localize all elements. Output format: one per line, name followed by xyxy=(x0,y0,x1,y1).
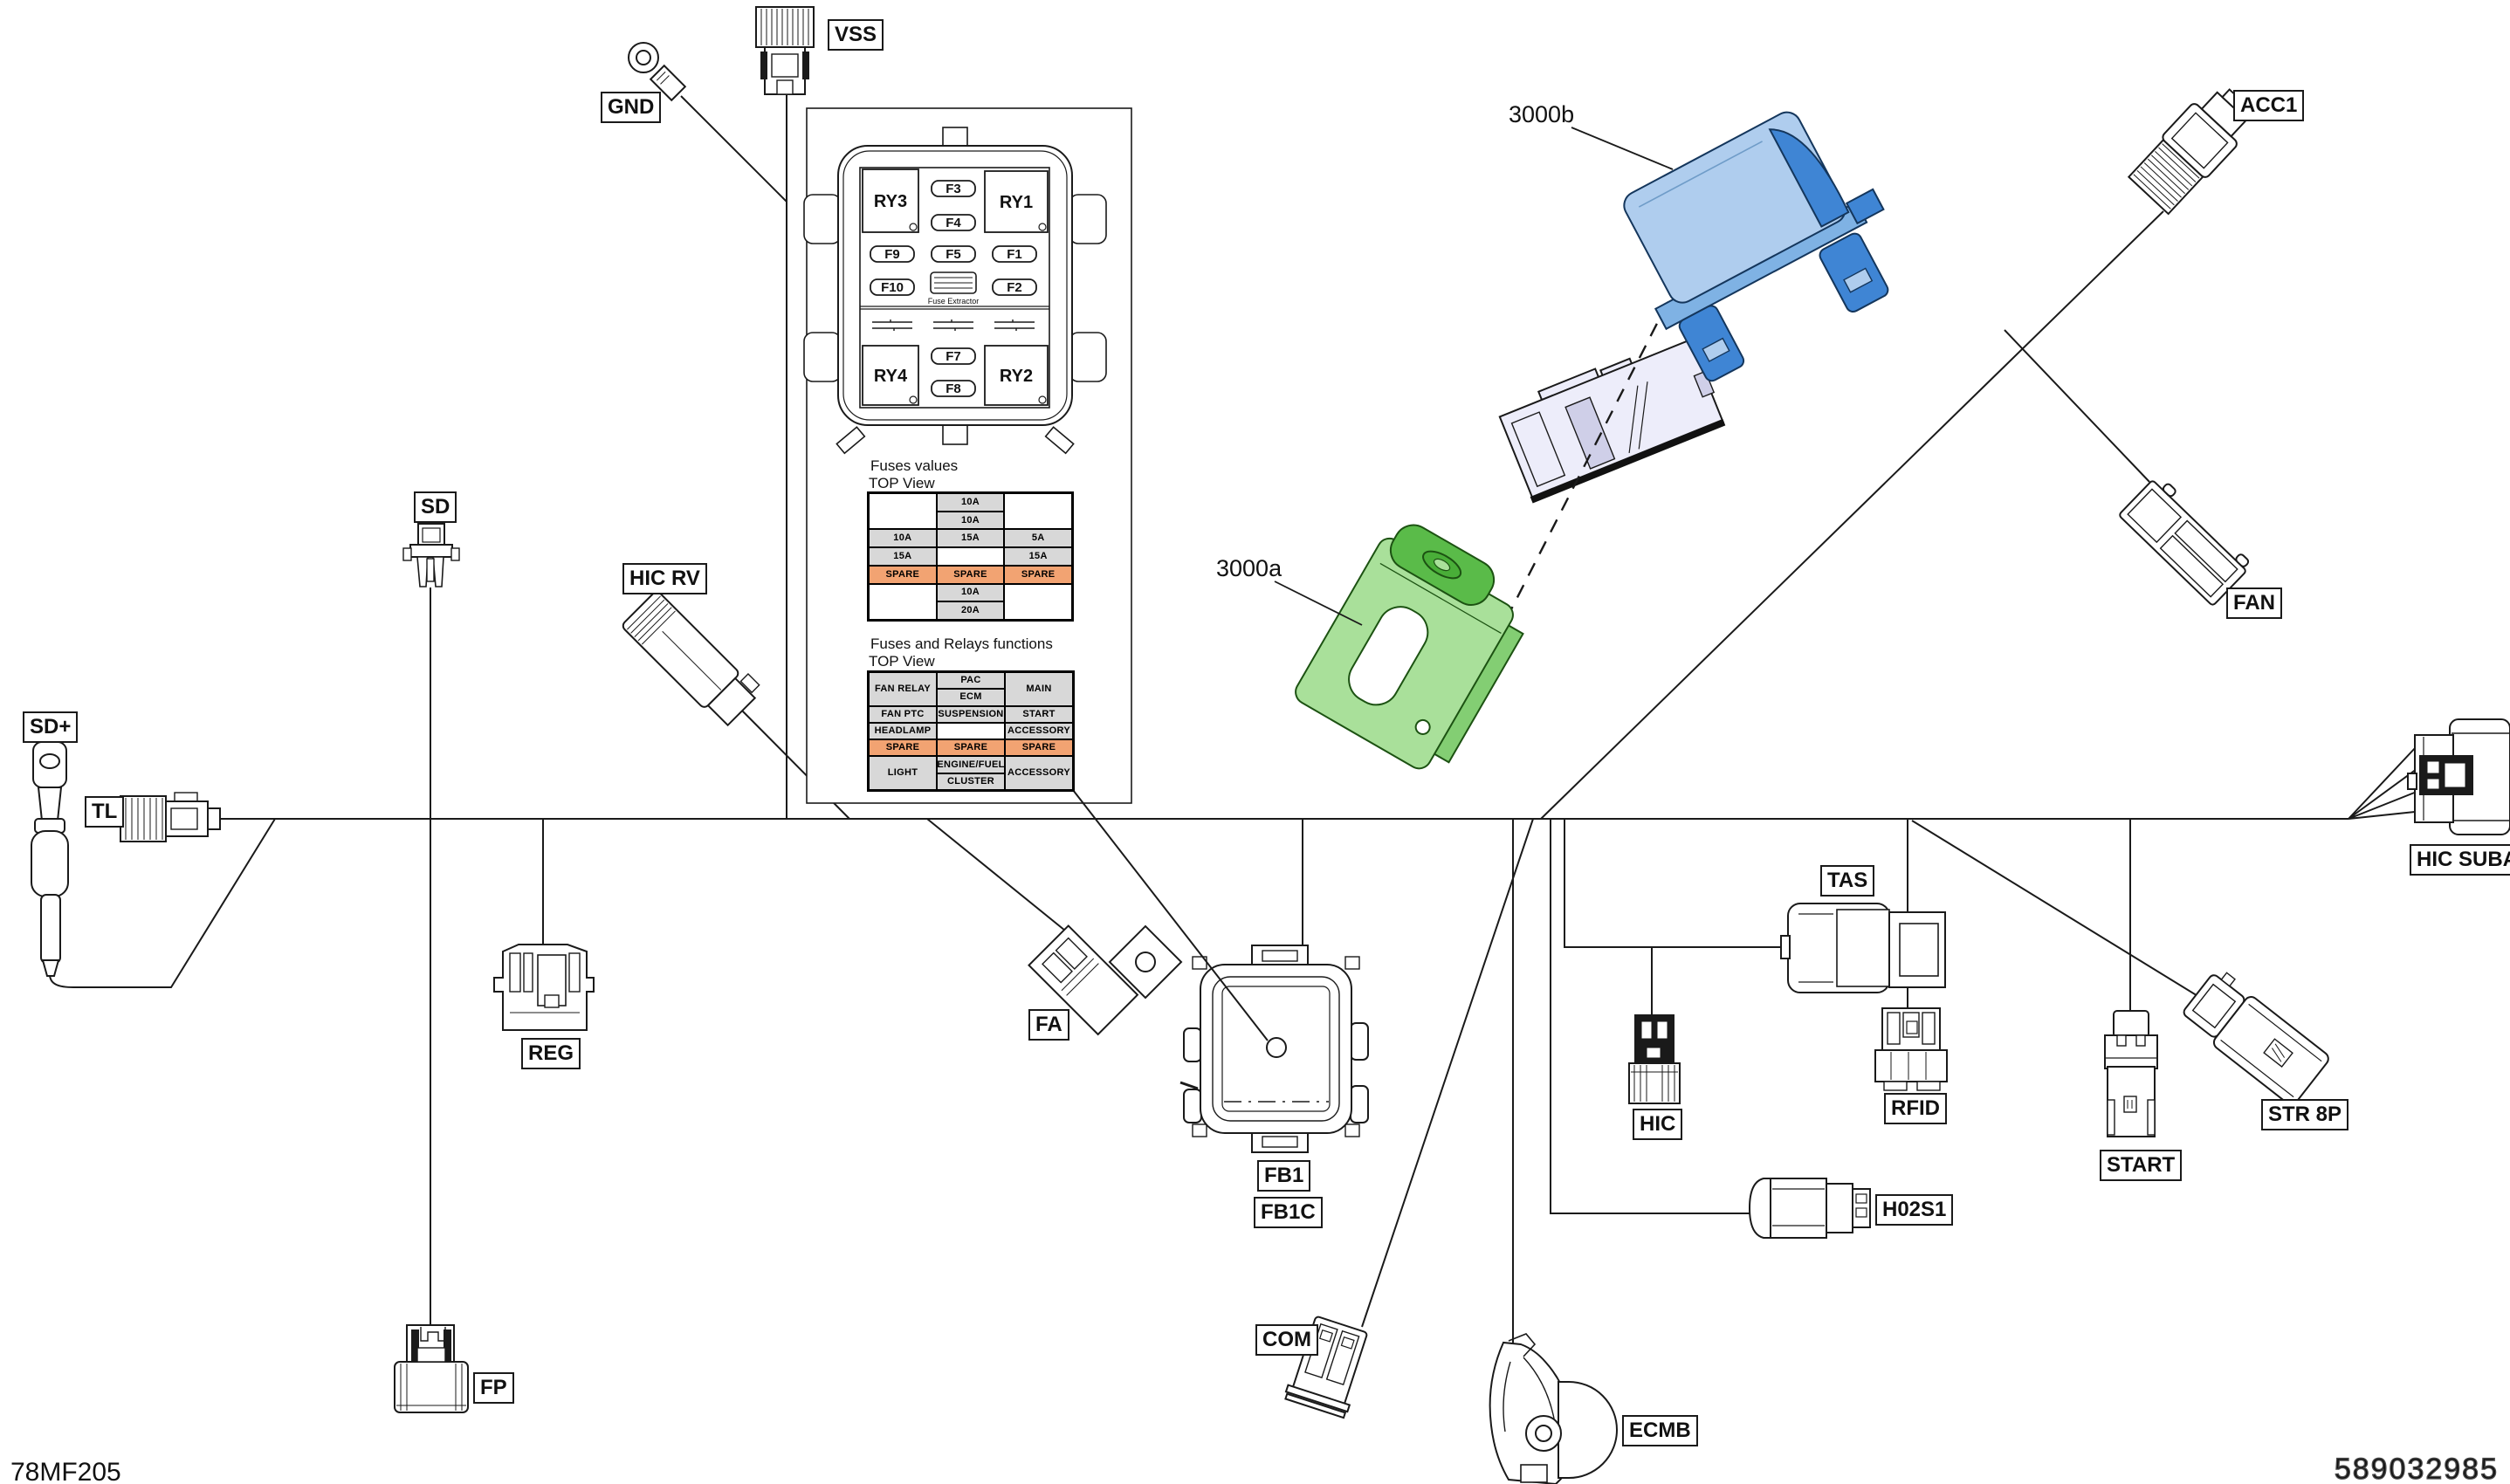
rfid-connector xyxy=(1875,1008,1947,1090)
table-cell: FAN RELAY xyxy=(869,672,937,706)
table-cell xyxy=(1004,584,1072,620)
label-3000a: 3000a xyxy=(1216,557,1282,581)
gnd-wire xyxy=(681,96,787,202)
footer-part-code: 78MF205 xyxy=(10,1458,121,1484)
table-cell: PAC xyxy=(937,672,1005,689)
table-cell: SPARE xyxy=(1004,566,1072,584)
h02s1-connector xyxy=(1750,1178,1870,1238)
label-sd: SD xyxy=(414,491,457,523)
tas-hic-wire xyxy=(1564,819,1788,1015)
table-cell: ACCESSORY xyxy=(1005,756,1073,790)
str-8p-connector xyxy=(2178,966,2333,1107)
table-cell: 10A xyxy=(937,584,1005,602)
table-cell: SPARE xyxy=(937,566,1005,584)
footer-document-number: 589032985 xyxy=(2335,1453,2499,1484)
label-com: COM xyxy=(1255,1324,1318,1356)
table-cell: 20A xyxy=(937,601,1005,620)
table-cell: FAN PTC xyxy=(869,706,937,723)
label-hic-rv: HIC RV xyxy=(622,563,707,594)
table-cell: 5A xyxy=(1004,529,1072,547)
fuse-values-table: 10A 10A 10A 15A 5A 15A 15A SPARE SPARE S… xyxy=(867,491,1074,622)
label-fa: FA xyxy=(1028,1009,1069,1041)
table-cell: SPARE xyxy=(937,739,1005,756)
relay-ry1-label: RY1 xyxy=(1000,193,1033,212)
table-cell: ENGINE/FUEL xyxy=(937,756,1005,773)
hic-suba-fan-wires xyxy=(2348,746,2417,819)
fuse-functions-table: FAN RELAY PAC MAIN ECM FAN PTC SUSPENSIO… xyxy=(867,670,1075,792)
relay-ry4-label: RY4 xyxy=(874,367,908,386)
fp-connector xyxy=(395,1325,468,1412)
fuse-f5-label: F5 xyxy=(946,247,961,262)
label-vss: VSS xyxy=(828,19,884,51)
table-cell: 15A xyxy=(937,529,1005,547)
tas-connector xyxy=(1781,903,1945,993)
fa-wire xyxy=(927,819,1065,931)
fuse-f2-label: F2 xyxy=(1007,280,1022,295)
ecmb-bracket xyxy=(1490,1334,1617,1484)
label-tl: TL xyxy=(85,796,124,828)
label-h02s1: H02S1 xyxy=(1875,1194,1953,1226)
table-cell xyxy=(1004,493,1072,529)
hic-connector xyxy=(1629,1015,1680,1103)
fuse-f8-label: F8 xyxy=(946,381,961,396)
harness-wires xyxy=(50,94,2417,1344)
label-hic: HIC xyxy=(1633,1109,1682,1140)
str8p-wire xyxy=(1912,821,2211,1004)
label-reg: REG xyxy=(521,1038,581,1069)
label-fp: FP xyxy=(473,1372,514,1404)
part-3000a xyxy=(1291,512,1544,780)
relay-ry3-label: RY3 xyxy=(874,192,907,211)
sd-connector xyxy=(403,524,459,587)
diagram-canvas: RY3 RY1 RY4 RY2 F3 F4 F9 F5 F1 F10 F2 F7… xyxy=(0,0,2510,1484)
fuse-f10-label: F10 xyxy=(881,280,904,295)
fuse-box-shell xyxy=(804,127,1106,453)
fuse-f9-label: F9 xyxy=(884,247,900,262)
table-cell: ACCESSORY xyxy=(1005,723,1073,739)
fuse-functions-view: TOP View xyxy=(869,653,935,670)
fan-connector xyxy=(2119,474,2253,607)
reg-connector xyxy=(494,945,594,1030)
com-wire xyxy=(1362,819,1533,1327)
label-tas: TAS xyxy=(1820,865,1874,897)
table-cell: MAIN xyxy=(1005,672,1073,706)
fan-wire xyxy=(2005,330,2149,482)
label-hic-suba: HIC SUBA xyxy=(2410,844,2510,876)
wiring-diagram: RY3 RY1 RY4 RY2 F3 F4 F9 F5 F1 F10 F2 F7… xyxy=(0,0,2510,1484)
table-cell xyxy=(869,584,937,620)
hic-rv-connector xyxy=(621,587,763,729)
fuse-extractor-label: Fuse Extractor xyxy=(928,297,980,306)
table-cell xyxy=(937,547,1005,566)
label-gnd: GND xyxy=(601,92,661,123)
hic-suba-connector xyxy=(2408,719,2510,835)
fuse-f1-label: F1 xyxy=(1007,247,1022,262)
label-fb1: FB1 xyxy=(1257,1160,1310,1192)
relay-ry2-label: RY2 xyxy=(1000,367,1033,386)
table-cell: 15A xyxy=(869,547,937,566)
label-str-8p: STR 8P xyxy=(2261,1099,2348,1130)
label-fb1c: FB1C xyxy=(1254,1197,1323,1228)
label-start: START xyxy=(2100,1150,2182,1181)
table-cell: SPARE xyxy=(1005,739,1073,756)
leader-3000b xyxy=(1571,127,1673,169)
table-cell: 10A xyxy=(937,512,1005,530)
table-cell: SUSPENSION xyxy=(937,706,1005,723)
table-cell: SPARE xyxy=(869,566,937,584)
fusebox-middle-part xyxy=(1495,331,1727,503)
fb1-center-hole xyxy=(1267,1038,1286,1057)
label-fan: FAN xyxy=(2226,587,2282,619)
table-cell: 10A xyxy=(937,493,1005,512)
vss-connector xyxy=(756,7,814,94)
tl-connector xyxy=(120,793,220,842)
start-connector xyxy=(2105,1011,2157,1137)
part-3000b xyxy=(1602,93,1919,394)
label-acc1: ACC1 xyxy=(2233,90,2304,121)
fuse-values-title: Fuses values xyxy=(870,457,958,475)
fuse-values-view: TOP View xyxy=(869,475,935,492)
table-cell: START xyxy=(1005,706,1073,723)
label-sd-plus: SD+ xyxy=(23,711,78,743)
fuse-functions-title: Fuses and Relays functions xyxy=(870,636,1053,653)
fuse-f7-label: F7 xyxy=(946,349,961,364)
sd-plus-wire xyxy=(50,819,275,987)
table-cell: 10A xyxy=(869,529,937,547)
table-cell: SPARE xyxy=(869,739,937,756)
label-rfid: RFID xyxy=(1884,1093,1947,1124)
label-ecmb: ECMB xyxy=(1622,1415,1698,1446)
table-cell: ECM xyxy=(937,689,1005,705)
table-cell: HEADLAMP xyxy=(869,723,937,739)
table-cell xyxy=(869,493,937,529)
sd-plus-terminal xyxy=(31,742,68,976)
table-cell: 15A xyxy=(1004,547,1072,566)
table-cell xyxy=(937,723,1005,739)
table-cell: CLUSTER xyxy=(937,773,1005,790)
label-3000b: 3000b xyxy=(1509,103,1574,127)
fuse-f4-label: F4 xyxy=(946,216,961,230)
fuse-f3-label: F3 xyxy=(946,182,961,196)
table-cell: LIGHT xyxy=(869,756,937,790)
